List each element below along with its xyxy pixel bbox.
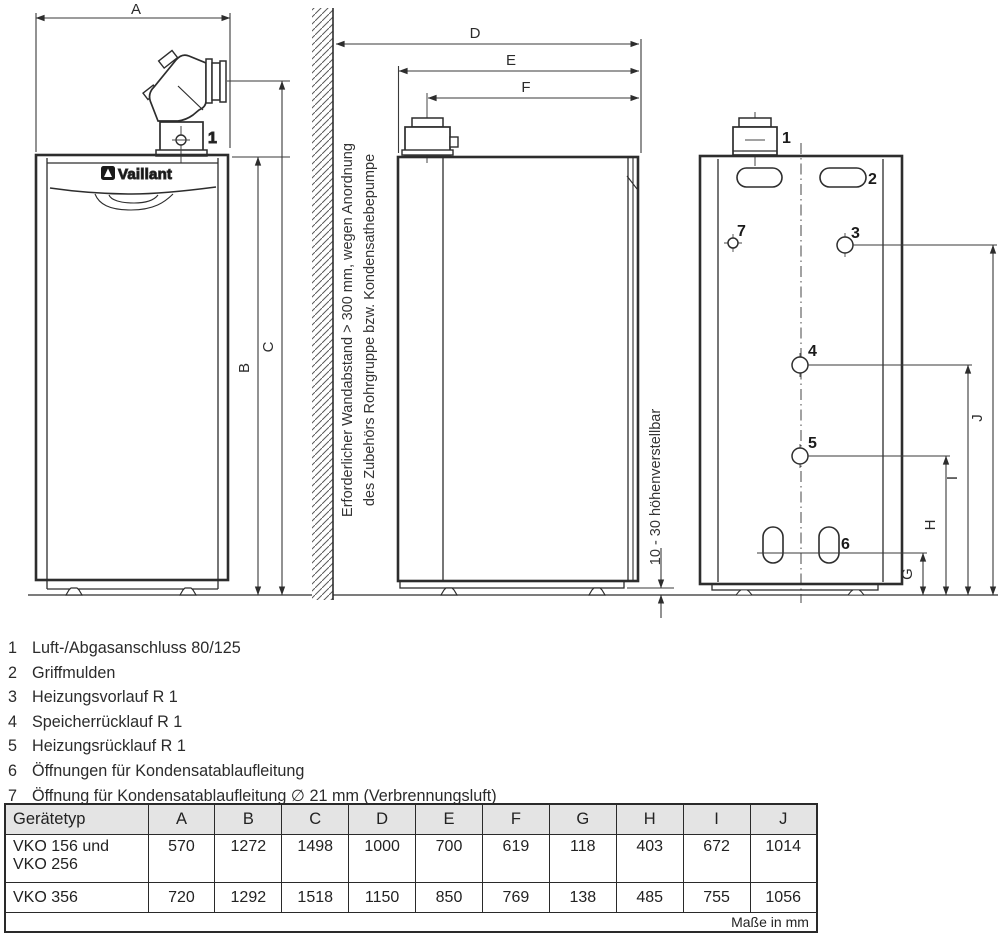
legend-item-1: 1Luft-/Abgasanschluss 80/125	[8, 636, 708, 661]
technical-drawing: Vaillant 1 A B C	[0, 0, 1000, 630]
flue-elbow	[143, 51, 226, 121]
dim-label-E: E	[506, 52, 516, 69]
rear-flue-collar	[733, 118, 777, 155]
callout-1-front: 1	[208, 130, 217, 147]
legend-num: 5	[8, 734, 32, 759]
value-cell: 769	[482, 883, 549, 913]
legend-item-3: 3Heizungsvorlauf R 1	[8, 685, 708, 710]
manual-page: Vaillant 1 A B C	[0, 0, 1000, 931]
device-type: VKO 356	[5, 883, 148, 913]
col-header-G: G	[549, 804, 616, 835]
col-header-A: A	[148, 804, 215, 835]
value-cell: 755	[683, 883, 750, 913]
value-cell: 1292	[215, 883, 282, 913]
hole-4	[792, 353, 808, 377]
dim-label-J: J	[969, 414, 986, 422]
side-flue-collar	[402, 118, 458, 155]
legend-num: 6	[8, 759, 32, 784]
table-row: VKO 356 720 1292 1518 1150 850 769 138 4…	[5, 883, 817, 913]
wall-section	[312, 8, 333, 600]
legend: 1Luft-/Abgasanschluss 80/125 2Griffmulde…	[8, 636, 708, 808]
wall-distance-note-line2: des Zubehörs Rohrgruppe bzw. Kondensathe…	[362, 154, 378, 506]
value-cell: 403	[616, 835, 683, 883]
legend-num: 1	[8, 636, 32, 661]
callout-6: 6	[841, 536, 850, 553]
legend-text: Heizungsrücklauf R 1	[32, 734, 186, 759]
side-dimensions	[336, 39, 674, 618]
value-cell: 118	[549, 835, 616, 883]
condensate-opening-right	[819, 527, 839, 563]
legend-item-5: 5Heizungsrücklauf R 1	[8, 734, 708, 759]
dim-label-I: I	[944, 476, 961, 480]
table-footer-row: Maße in mm	[5, 913, 817, 933]
col-header-D: D	[349, 804, 416, 835]
brand-wordmark: Vaillant	[118, 166, 172, 183]
value-cell: 850	[416, 883, 483, 913]
vaillant-logo: Vaillant	[101, 166, 172, 183]
col-header-E: E	[416, 804, 483, 835]
legend-item-2: 2Griffmulden	[8, 661, 708, 686]
grip-recess-left	[737, 168, 782, 187]
dim-label-G: G	[899, 568, 916, 580]
wall-distance-note-line1: Erforderlicher Wandabstand > 300 mm, weg…	[340, 143, 356, 517]
dim-label-C: C	[260, 341, 277, 352]
side-view	[398, 93, 638, 595]
value-cell: 720	[148, 883, 215, 913]
rear-dimensions	[757, 245, 997, 595]
device-type: VKO 156 und VKO 256	[5, 835, 148, 883]
rear-view: 1 2 3 7 4 5 6	[700, 112, 902, 603]
col-header-J: J	[750, 804, 817, 835]
value-cell: 1000	[349, 835, 416, 883]
dim-label-F: F	[521, 79, 530, 96]
value-cell: 700	[416, 835, 483, 883]
dim-label-B: B	[236, 363, 253, 373]
callout-7: 7	[737, 223, 746, 240]
value-cell: 1518	[282, 883, 349, 913]
front-view: Vaillant 1	[36, 51, 228, 595]
value-cell: 672	[683, 835, 750, 883]
value-cell: 485	[616, 883, 683, 913]
value-cell: 138	[549, 883, 616, 913]
hole-5	[792, 444, 808, 468]
dim-label-D: D	[470, 25, 481, 42]
callout-2: 2	[868, 171, 877, 188]
legend-text: Heizungsvorlauf R 1	[32, 685, 178, 710]
grip-recess-right	[820, 168, 866, 187]
callout-5: 5	[808, 435, 817, 452]
value-cell: 1498	[282, 835, 349, 883]
condensate-opening-left	[763, 527, 783, 563]
legend-num: 3	[8, 685, 32, 710]
value-cell: 570	[148, 835, 215, 883]
col-header-F: F	[482, 804, 549, 835]
dim-label-H: H	[922, 520, 939, 531]
legend-text: Luft-/Abgasanschluss 80/125	[32, 636, 241, 661]
value-cell: 1014	[750, 835, 817, 883]
legend-item-4: 4Speicherrücklauf R 1	[8, 710, 708, 735]
legend-item-6: 6Öffnungen für Kondensatablaufleitung	[8, 759, 708, 784]
value-cell: 1150	[349, 883, 416, 913]
dimensions-table: Gerätetyp A B C D E F G H I J VKO 156 un…	[4, 803, 818, 933]
legend-text: Öffnungen für Kondensatablaufleitung	[32, 759, 304, 784]
legend-num: 4	[8, 710, 32, 735]
units-note: Maße in mm	[5, 913, 817, 933]
value-cell: 619	[482, 835, 549, 883]
col-header-B: B	[215, 804, 282, 835]
callout-3: 3	[851, 225, 860, 242]
legend-num: 2	[8, 661, 32, 686]
height-adjustable-note: 10 - 30 höhenverstellbar	[648, 409, 664, 566]
dim-label-A: A	[131, 1, 141, 18]
flue-collar	[156, 122, 207, 163]
callout-1-rear: 1	[782, 130, 791, 147]
value-cell: 1272	[215, 835, 282, 883]
table-row: VKO 156 und VKO 256 570 1272 1498 1000 7…	[5, 835, 817, 883]
legend-text: Griffmulden	[32, 661, 115, 686]
col-header-geraetetyp: Gerätetyp	[5, 804, 148, 835]
table-header-row: Gerätetyp A B C D E F G H I J	[5, 804, 817, 835]
col-header-I: I	[683, 804, 750, 835]
value-cell: 1056	[750, 883, 817, 913]
callout-4: 4	[808, 343, 817, 360]
col-header-C: C	[282, 804, 349, 835]
col-header-H: H	[616, 804, 683, 835]
legend-text: Speicherrücklauf R 1	[32, 710, 182, 735]
